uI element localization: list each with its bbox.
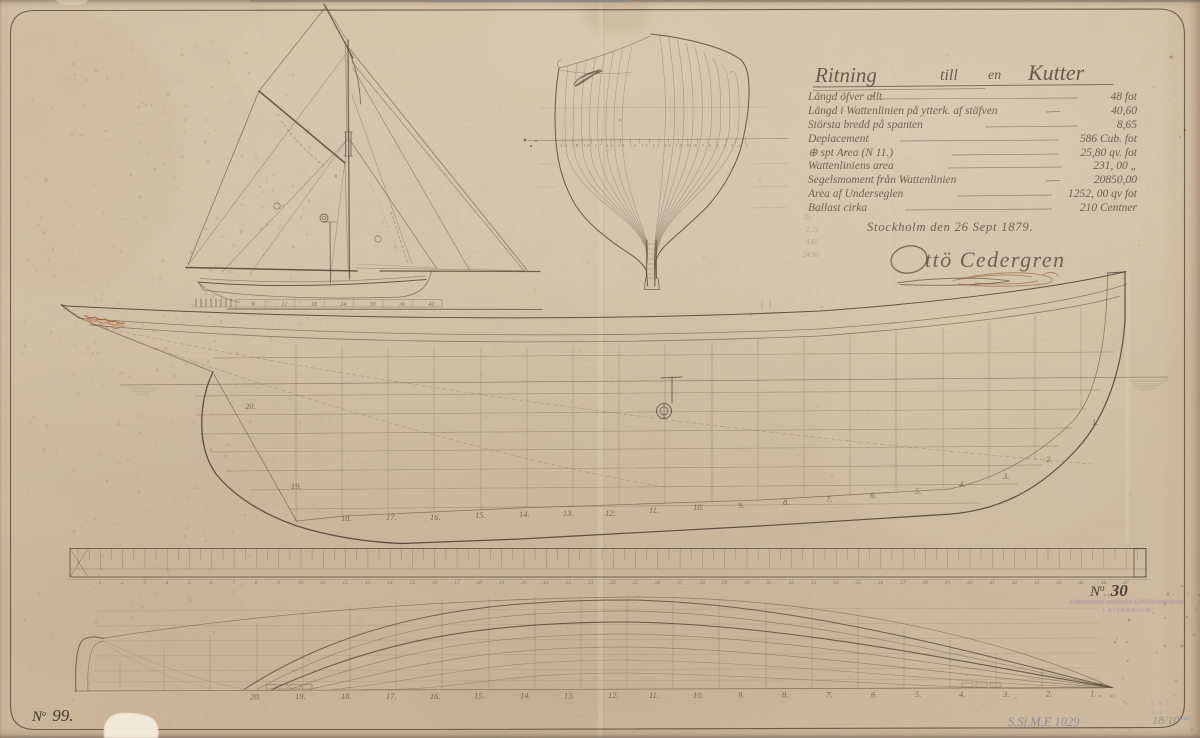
svg-text:36: 36 (398, 302, 405, 308)
svg-text:5: 5 (188, 580, 191, 586)
svg-text:1.: 1. (1090, 689, 1096, 699)
svg-text:Y A 7: Y A 7 (1150, 699, 1168, 708)
svg-text:15.: 15. (475, 510, 486, 520)
svg-text:11.: 11. (649, 505, 659, 515)
svg-text:11: 11 (320, 580, 325, 586)
svg-text:6.: 6. (871, 689, 877, 699)
svg-text:24,90: 24,90 (803, 251, 819, 259)
svg-text:7: 7 (232, 580, 235, 586)
svg-text:37: 37 (899, 580, 906, 586)
svg-text:7.: 7. (826, 689, 832, 699)
svg-text:16: 16 (432, 580, 438, 586)
svg-text:586 Cub. fot: 586 Cub. fot (1080, 133, 1138, 145)
svg-text:43: 43 (1034, 579, 1040, 586)
svg-text:3.: 3. (1002, 689, 1009, 699)
svg-text:Stockholm den 26 Sept 1879.: Stockholm den 26 Sept 1879. (867, 220, 1033, 234)
svg-text:20850,00: 20850,00 (1094, 174, 1137, 186)
svg-text:39: 39 (944, 580, 951, 586)
svg-text:4,65: 4,65 (806, 238, 819, 246)
svg-text:7.: 7. (826, 494, 832, 504)
svg-text:No 30: No 30 (1089, 581, 1128, 600)
svg-text:12.: 12. (605, 508, 616, 518)
svg-text:36: 36 (877, 580, 884, 586)
svg-text:8.: 8. (783, 497, 789, 507)
svg-text:13.: 13. (564, 690, 575, 700)
svg-text:2,25: 2,25 (806, 226, 819, 234)
svg-text:24: 24 (340, 301, 346, 308)
svg-text:10.: 10. (693, 502, 704, 512)
svg-text:44: 44 (1056, 579, 1062, 586)
svg-text:18.: 18. (341, 691, 352, 701)
svg-text:18,: 18, (803, 213, 812, 221)
svg-text:14: 14 (387, 579, 393, 586)
svg-text:8.: 8. (782, 690, 788, 700)
svg-text:4.: 4. (959, 479, 965, 489)
svg-text:FÖRENINGEN SVERIGES SJÖFARTSMU: FÖRENINGEN SVERIGES SJÖFARTSMUSEUM (1070, 599, 1184, 606)
svg-text:13: 13 (365, 580, 371, 586)
svg-text:till: till (940, 67, 958, 84)
svg-text:ttö Cedergren: ttö Cedergren (925, 247, 1066, 272)
svg-text:22: 22 (566, 580, 572, 586)
svg-text:20.: 20. (245, 401, 256, 411)
svg-text:9.: 9. (738, 690, 744, 700)
svg-text:16.: 16. (430, 512, 441, 522)
svg-text:19 4: 19 4 (1148, 708, 1162, 717)
svg-text:28: 28 (699, 580, 705, 586)
svg-text:Längd i Wattenlinien på ytterk: Längd i Wattenlinien på ytterk. af stäfv… (807, 104, 998, 117)
svg-text:Längd öfver allt: Längd öfver allt (807, 91, 883, 103)
svg-text:12.: 12. (608, 690, 619, 700)
svg-text:Segelsmoment från Wattenlini: Segelsmoment från Wattenlinien (808, 173, 957, 186)
svg-text:15.: 15. (474, 691, 485, 701)
svg-text:4.: 4. (959, 689, 965, 699)
svg-text:6.: 6. (870, 490, 876, 500)
svg-text:30: 30 (743, 580, 750, 586)
svg-text:S.Sj.M.E 1029: S.Sj.M.E 1029 (1008, 715, 1080, 729)
svg-text:27: 27 (677, 580, 683, 586)
svg-text:3.: 3. (1002, 471, 1009, 481)
svg-text:48 fot: 48 fot (1110, 91, 1137, 103)
svg-text:1.: 1. (1092, 417, 1098, 427)
svg-text:34: 34 (832, 579, 839, 586)
svg-text:2: 2 (121, 580, 124, 586)
svg-text:No 99.: No 99. (31, 706, 74, 725)
svg-text:Kutter: Kutter (1027, 60, 1085, 85)
svg-text:45: 45 (1078, 579, 1084, 586)
svg-text:4: 4 (166, 579, 169, 586)
svg-text:33: 33 (810, 580, 817, 586)
svg-text:20: 20 (521, 580, 527, 586)
svg-text:23: 23 (588, 580, 594, 586)
svg-text:2.: 2. (1046, 689, 1052, 699)
svg-text:210 Centner: 210 Centner (1080, 202, 1138, 214)
svg-text:13.: 13. (563, 508, 574, 518)
svg-text:17: 17 (454, 580, 460, 586)
svg-text:I STOCKHOLM: I STOCKHOLM (1103, 608, 1151, 614)
svg-text:12: 12 (281, 302, 287, 308)
svg-text:1: 1 (99, 580, 102, 586)
svg-text:Ritning: Ritning (814, 63, 877, 87)
svg-text:40,60: 40,60 (1111, 105, 1137, 117)
svg-text:Area af Underseglen: Area af Underseglen (807, 188, 904, 200)
svg-text:20 19 18 17 16 15 14 13 12 11: 20 19 18 17 16 15 14 13 12 11 10 9 8 7 6… (560, 143, 748, 148)
svg-text:26: 26 (655, 580, 661, 586)
svg-text:9.: 9. (738, 500, 744, 510)
svg-text:6: 6 (252, 302, 255, 308)
svg-text:15: 15 (409, 580, 415, 586)
svg-text:2.: 2. (1046, 454, 1052, 464)
svg-text:38: 38 (921, 580, 928, 586)
svg-text:5.: 5. (915, 689, 921, 699)
svg-text:14.: 14. (520, 690, 531, 700)
svg-text:8,65: 8,65 (1117, 119, 1137, 131)
svg-text:17.: 17. (386, 512, 397, 522)
svg-text:⊕ spt Area (N 11.): ⊕ spt Area (N 11.) (808, 147, 893, 159)
svg-text:25,80 qv. fot: 25,80 qv. fot (1080, 147, 1137, 159)
svg-text:11.: 11. (649, 690, 659, 700)
svg-text:19: 19 (499, 580, 505, 586)
svg-text:24: 24 (610, 579, 616, 586)
svg-text:231, 00 „: 231, 00 „ (1093, 160, 1137, 172)
svg-text:3: 3 (142, 580, 146, 586)
svg-text:40: 40 (967, 579, 973, 586)
svg-text:20.: 20. (250, 691, 261, 701)
svg-text:32: 32 (788, 580, 795, 586)
svg-text:1252, 00 qv fot: 1252, 00 qv fot (1068, 188, 1138, 200)
svg-text:19.: 19. (295, 691, 306, 701)
svg-text:8: 8 (255, 580, 258, 586)
svg-text:29: 29 (722, 580, 728, 586)
svg-text:6: 6 (210, 580, 213, 586)
svg-text:10: 10 (298, 580, 304, 586)
svg-text:21: 21 (543, 580, 549, 586)
svg-text:42: 42 (1012, 579, 1018, 586)
svg-text:18.: 18. (341, 513, 352, 523)
svg-text:5.: 5. (915, 486, 921, 496)
svg-text:Ballast cirka: Ballast cirka (808, 202, 867, 214)
svg-text:18: 18 (311, 302, 317, 308)
svg-text:en: en (988, 68, 1001, 83)
svg-text:42: 42 (428, 301, 434, 308)
svg-text:Deplacement: Deplacement (807, 133, 869, 145)
svg-text:16.: 16. (430, 691, 441, 701)
svg-text:25: 25 (632, 580, 638, 586)
svg-text:Wattenliniens area: Wattenliniens area (808, 160, 894, 172)
svg-text:Största bredd på spanten: Största bredd på spanten (808, 118, 923, 131)
svg-text:10.: 10. (693, 690, 704, 700)
svg-text:35: 35 (854, 580, 861, 586)
svg-text:14.: 14. (519, 509, 530, 519)
svg-text:17.: 17. (386, 691, 397, 701)
svg-text:30: 30 (369, 302, 376, 308)
svg-text:18: 18 (476, 580, 482, 586)
svg-text:31: 31 (765, 580, 772, 586)
svg-text:12: 12 (343, 580, 349, 586)
svg-text:41: 41 (989, 579, 995, 586)
svg-text:9: 9 (277, 580, 280, 586)
svg-text:19.: 19. (291, 481, 302, 491)
